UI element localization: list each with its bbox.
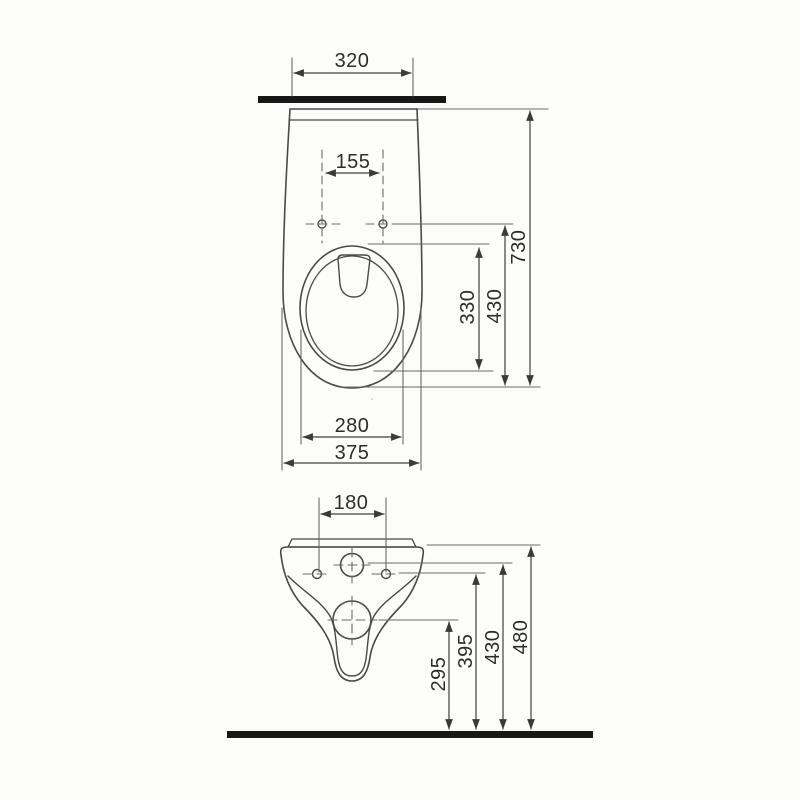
dim-label-rim-height: 480	[511, 620, 531, 655]
dim-label-hole-spacing-front: 180	[334, 493, 369, 513]
dim-label-hole-depth: 430	[485, 289, 505, 324]
technical-drawing-canvas: 320 155 330 430 730 280 375 180 295 395 …	[0, 0, 800, 800]
seat-rim-front	[288, 539, 416, 547]
bowl-rim-outer	[300, 246, 404, 370]
dim-label-inlet-center-height: 430	[483, 630, 503, 665]
dim-label-outlet-center-height: 295	[429, 657, 449, 692]
floor-section-bar	[227, 731, 593, 738]
dim-label-bowl-opening-width: 280	[335, 416, 370, 436]
drawing-linework	[0, 0, 800, 800]
dim-label-fixing-hole-height: 395	[456, 634, 476, 669]
flush-distributor	[338, 255, 370, 297]
dim-label-bowl-opening-length: 330	[458, 290, 478, 325]
bowl-rim-inner	[306, 256, 398, 366]
plan-view-group	[258, 58, 548, 470]
dim-label-overall-width: 375	[335, 443, 370, 463]
dim-label-hole-spacing-plan: 155	[336, 152, 371, 172]
wall-section-bar	[258, 96, 446, 103]
dim-label-install-width: 320	[335, 51, 370, 71]
dim-label-overall-depth: 730	[509, 230, 529, 265]
